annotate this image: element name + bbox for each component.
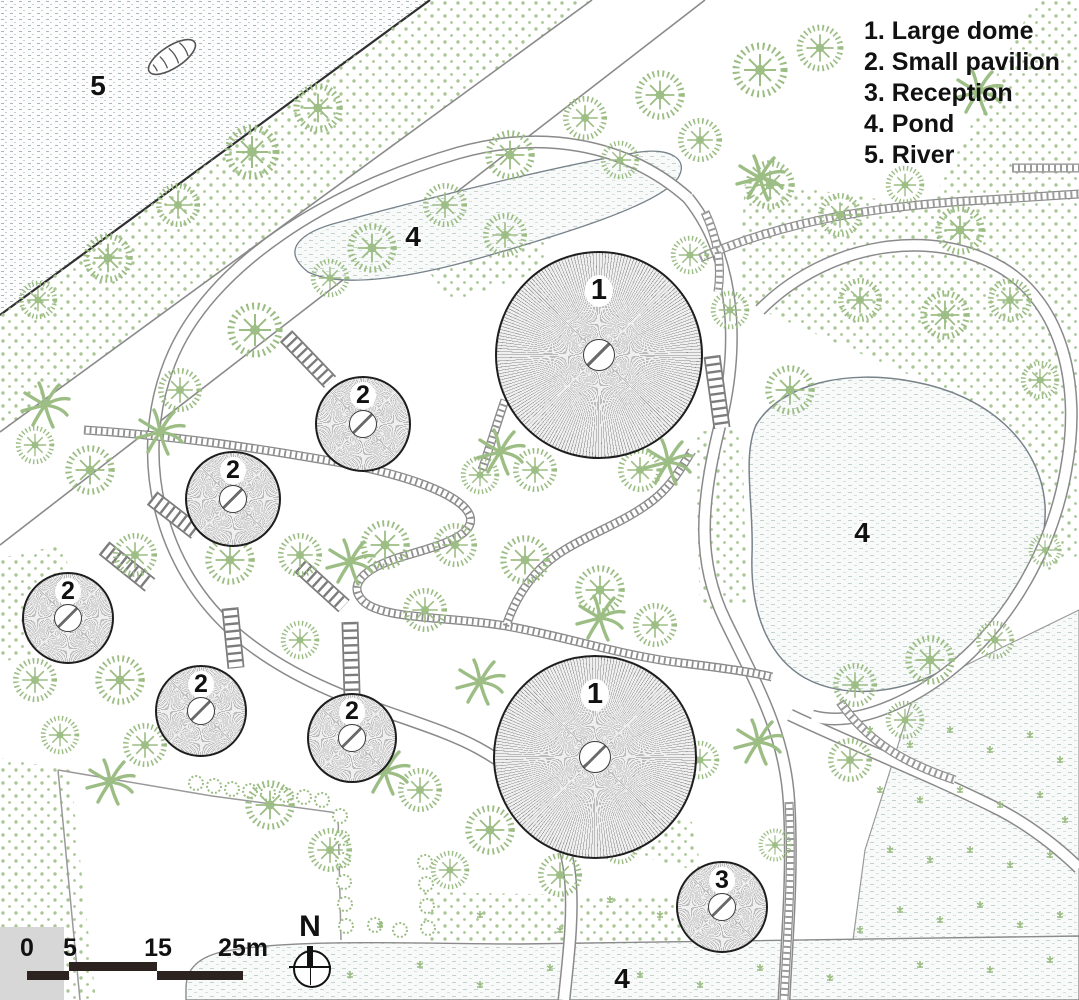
pond-top-label: 4 [405, 221, 421, 253]
structure-number: 1 [581, 679, 609, 711]
legend-item-river: 5. River [864, 140, 1060, 171]
compass-tail [310, 968, 312, 985]
scale-bar-segment [69, 962, 157, 971]
scale-tick-25m: 25m [218, 934, 268, 963]
large-dome-1: 1 [495, 251, 703, 459]
structure-number: 2 [339, 698, 365, 726]
pavilion-center-column [338, 724, 366, 752]
structure-number: 3 [709, 867, 735, 895]
small-pavilion-2: 2 [185, 451, 281, 547]
legend-item-pond: 4. Pond [864, 109, 1060, 140]
structure-number: 2 [350, 382, 376, 410]
legend-item-reception: 3. Reception [864, 78, 1060, 109]
pavilion-center-column [187, 697, 215, 725]
small-pavilion-4: 2 [155, 665, 247, 757]
pavilion-center-column [54, 604, 82, 632]
structure-number: 2 [220, 457, 246, 485]
pond-right-label: 4 [854, 517, 870, 549]
pavilion-center-column [219, 485, 247, 513]
structure-number: 1 [585, 275, 613, 307]
compass-needle [307, 946, 313, 968]
large-dome-2: 1 [493, 655, 697, 859]
reception-center-column [708, 893, 736, 921]
reception-building: 3 [676, 861, 768, 953]
scale-tick-15: 15 [144, 934, 172, 963]
pond-right [749, 377, 1045, 691]
north-arrow: N [276, 908, 346, 1000]
river-label: 5 [90, 70, 106, 102]
landscape-site-plan: 1 1 2 2 2 2 2 3 5 4 4 4 1. Large dome 2.… [0, 0, 1079, 1000]
scale-bar-segment [157, 971, 243, 980]
small-pavilion-1: 2 [315, 376, 411, 472]
dome-center-column [579, 741, 611, 773]
stepping-stone-paths [84, 400, 772, 677]
legend-item-large-dome: 1. Large dome [864, 16, 1060, 47]
scale-tick-0: 0 [20, 934, 34, 963]
small-pavilion-3: 2 [22, 572, 114, 664]
legend-item-small-pavilion: 2. Small pavilion [864, 47, 1060, 78]
legend: 1. Large dome 2. Small pavilion 3. Recep… [864, 16, 1060, 171]
north-label: N [299, 910, 321, 944]
scale-bar-segment [27, 971, 69, 980]
structure-number: 2 [188, 671, 214, 699]
pavilion-center-column [349, 410, 377, 438]
dome-center-column [583, 339, 615, 371]
structure-number: 2 [55, 578, 81, 606]
small-pavilion-5: 2 [307, 693, 397, 783]
pond-bottom-label: 4 [614, 963, 630, 995]
scale-tick-5: 5 [63, 934, 77, 963]
